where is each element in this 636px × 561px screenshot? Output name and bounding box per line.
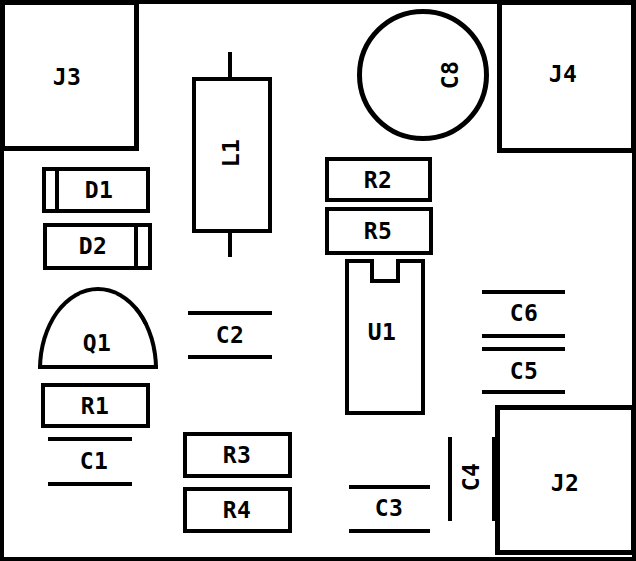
component-c1-plate-2 <box>48 482 132 486</box>
component-d2-polarity-band <box>134 225 138 268</box>
component-r5-label: R5 <box>364 220 393 243</box>
component-c1-label: C1 <box>80 450 109 473</box>
component-j4-label: J4 <box>549 63 578 86</box>
component-c5-plate-2 <box>482 390 565 394</box>
component-c8-label: C8 <box>439 61 462 90</box>
component-j3-label: J3 <box>53 66 82 89</box>
component-c5-plate-1 <box>482 347 565 351</box>
component-u1-label: U1 <box>368 321 397 344</box>
component-l1-lead-2 <box>228 231 232 257</box>
component-c2-label: C2 <box>216 324 245 347</box>
component-c6-label: C6 <box>510 302 539 325</box>
component-u1-pin1-notch <box>370 259 400 283</box>
component-j2-label: J2 <box>551 472 580 495</box>
component-c3-label: C3 <box>375 497 404 520</box>
component-c5-label: C5 <box>510 360 539 383</box>
component-r1-label: R1 <box>81 395 110 418</box>
component-c6-plate-2 <box>482 334 565 338</box>
component-c2-plate-2 <box>188 355 272 359</box>
component-r2-label: R2 <box>364 169 393 192</box>
pcb-silkscreen-diagram: J3J4C8L1D1D2Q1R1C1C2R2R5U1C6C5R3R4C3C4J2 <box>0 0 636 561</box>
component-r3-label: R3 <box>223 444 252 467</box>
component-d2-label: D2 <box>79 235 108 258</box>
component-c3-plate-2 <box>349 529 430 533</box>
component-d1-label: D1 <box>85 179 114 202</box>
component-r4-label: R4 <box>223 499 252 522</box>
component-l1-label: L1 <box>220 139 243 168</box>
component-c4-plate-1 <box>448 437 452 521</box>
component-c2-plate-1 <box>188 311 272 315</box>
component-q1-label: Q1 <box>83 332 112 355</box>
component-c1-plate-1 <box>48 437 132 441</box>
component-l1-lead-1 <box>228 52 232 79</box>
component-d1-polarity-band <box>55 169 59 211</box>
component-c6-plate-1 <box>482 290 565 294</box>
component-c8-outline <box>357 9 489 141</box>
component-c4-label: C4 <box>460 463 483 492</box>
component-c3-plate-1 <box>349 485 430 489</box>
